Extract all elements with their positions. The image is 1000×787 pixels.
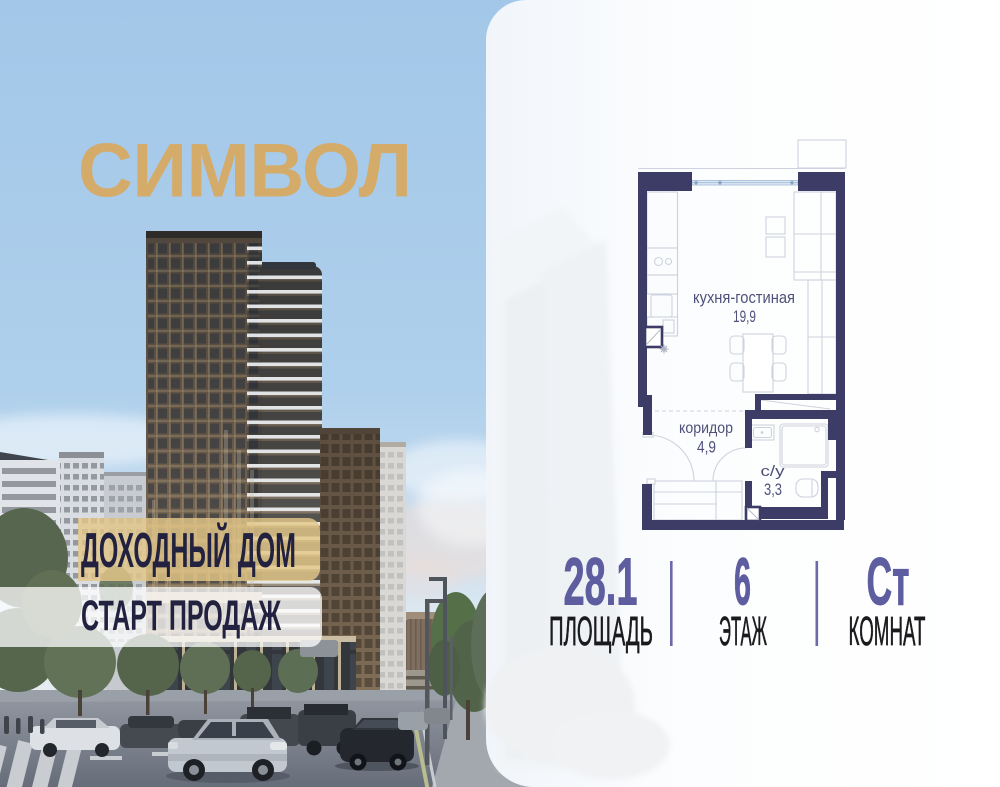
svg-text:ДОХОДНЫЙ ДОМ: ДОХОДНЫЙ ДОМ (81, 523, 296, 578)
svg-text:4,9: 4,9 (697, 438, 716, 457)
svg-text:ЭТАЖ: ЭТАЖ (719, 608, 767, 654)
svg-text:СТАРТ ПРОДАЖ: СТАРТ ПРОДАЖ (81, 593, 281, 640)
svg-text:кухня-гостиная: кухня-гостиная (693, 288, 795, 307)
svg-text:19,9: 19,9 (733, 307, 756, 326)
svg-text:коридор: коридор (679, 420, 733, 437)
svg-text:СИМВОЛ: СИМВОЛ (78, 129, 412, 214)
svg-text:с/у: с/у (761, 464, 786, 480)
svg-text:КОМНАТ: КОМНАТ (849, 608, 926, 654)
svg-text:3,3: 3,3 (764, 480, 782, 499)
svg-text:ПЛОЩАДЬ: ПЛОЩАДЬ (549, 608, 653, 654)
